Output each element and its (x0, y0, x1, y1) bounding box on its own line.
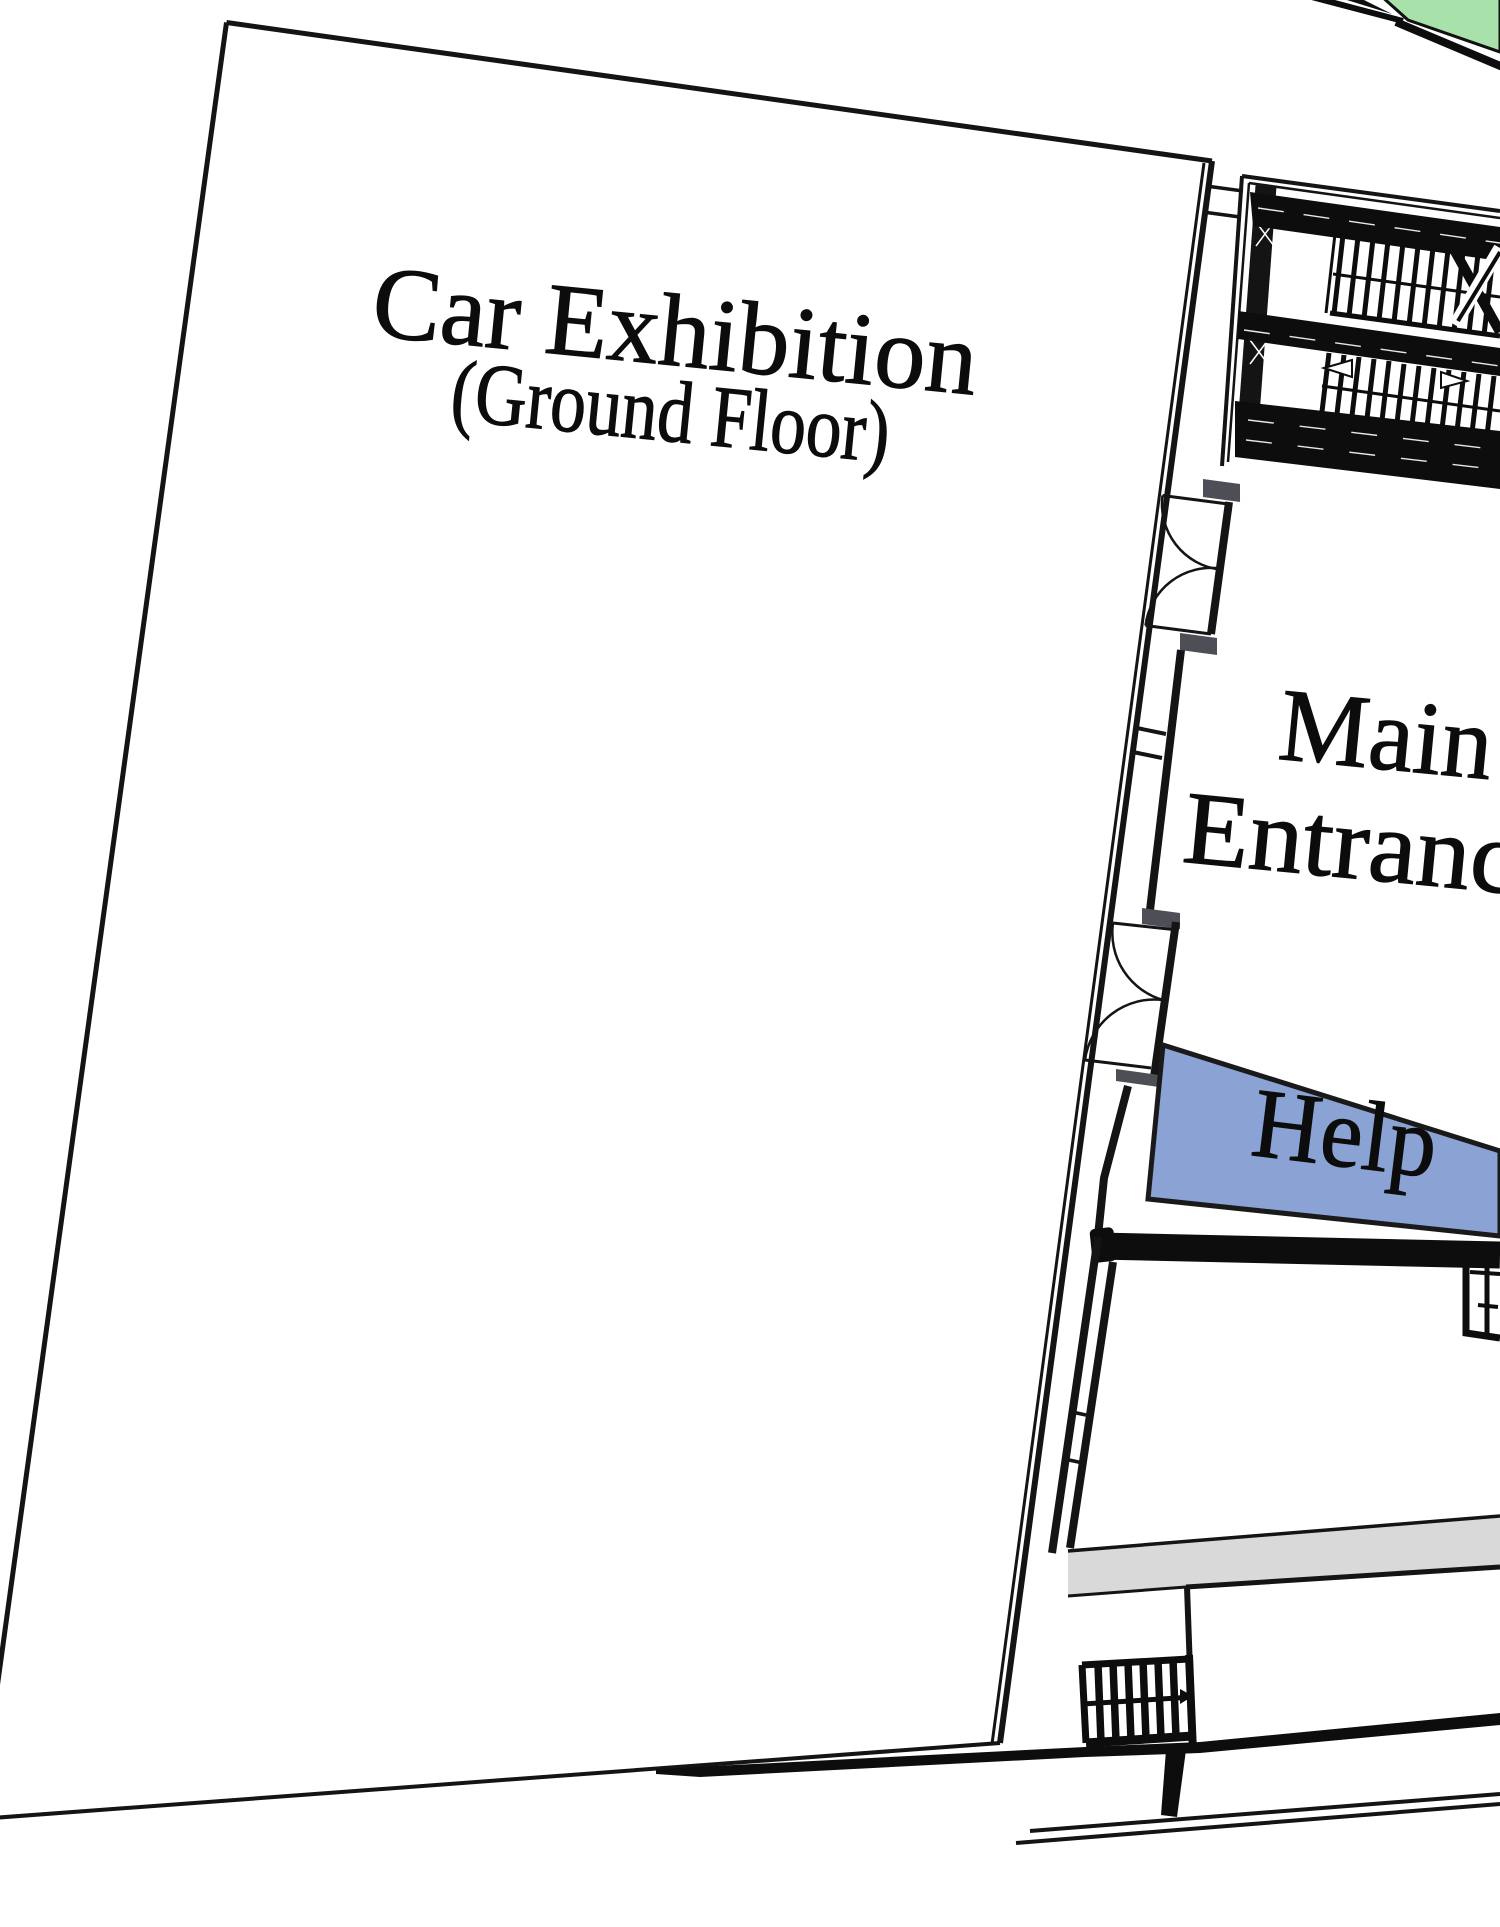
svg-text:Help: Help (1247, 1068, 1444, 1199)
